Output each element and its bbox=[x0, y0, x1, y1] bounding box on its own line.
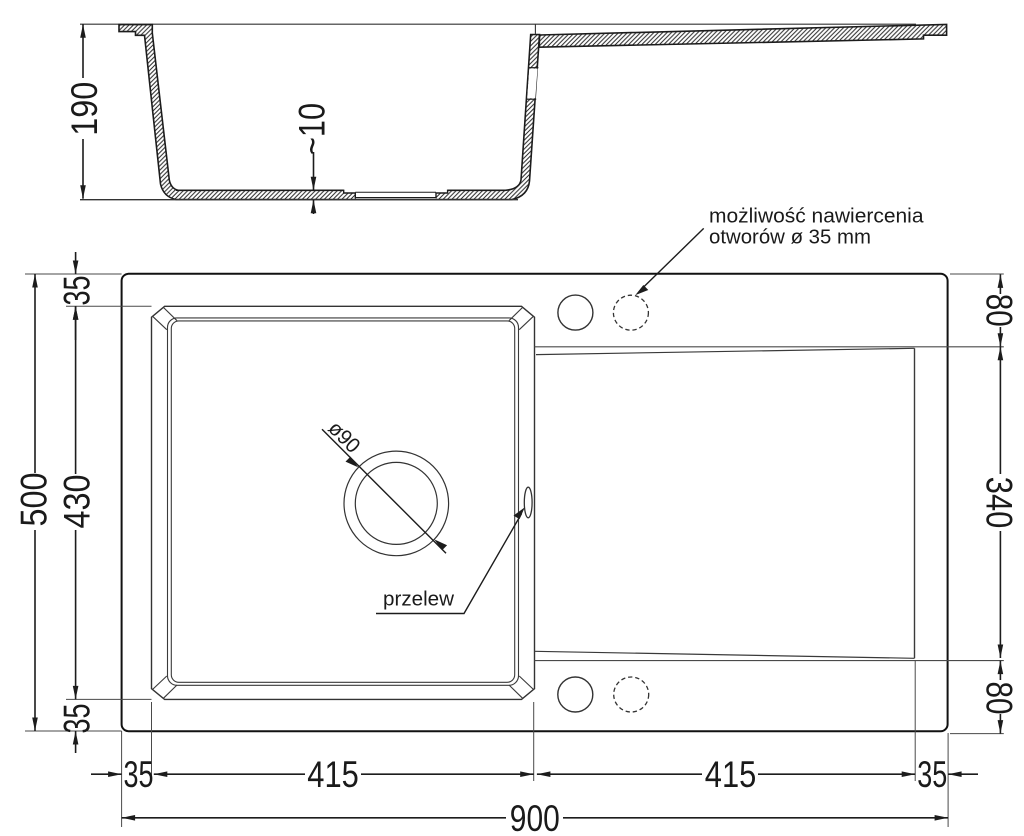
svg-text:35: 35 bbox=[57, 276, 98, 306]
svg-text:35: 35 bbox=[124, 754, 154, 795]
svg-text:415: 415 bbox=[705, 754, 757, 795]
svg-text:przelew: przelew bbox=[383, 588, 454, 611]
svg-text:340: 340 bbox=[979, 477, 1020, 529]
svg-text:35: 35 bbox=[56, 704, 97, 734]
svg-text:415: 415 bbox=[307, 754, 359, 795]
svg-text:35: 35 bbox=[917, 754, 947, 795]
svg-text:otworów ø 35 mm: otworów ø 35 mm bbox=[709, 227, 871, 249]
svg-text:430: 430 bbox=[57, 475, 98, 529]
svg-text:80: 80 bbox=[979, 294, 1020, 327]
svg-text:190: 190 bbox=[64, 82, 105, 136]
svg-text:900: 900 bbox=[510, 798, 560, 836]
svg-text:80: 80 bbox=[979, 682, 1020, 715]
svg-text:~10: ~10 bbox=[292, 103, 333, 155]
svg-text:możliwość nawiercenia: możliwość nawiercenia bbox=[709, 206, 924, 228]
svg-text:500: 500 bbox=[14, 473, 55, 527]
